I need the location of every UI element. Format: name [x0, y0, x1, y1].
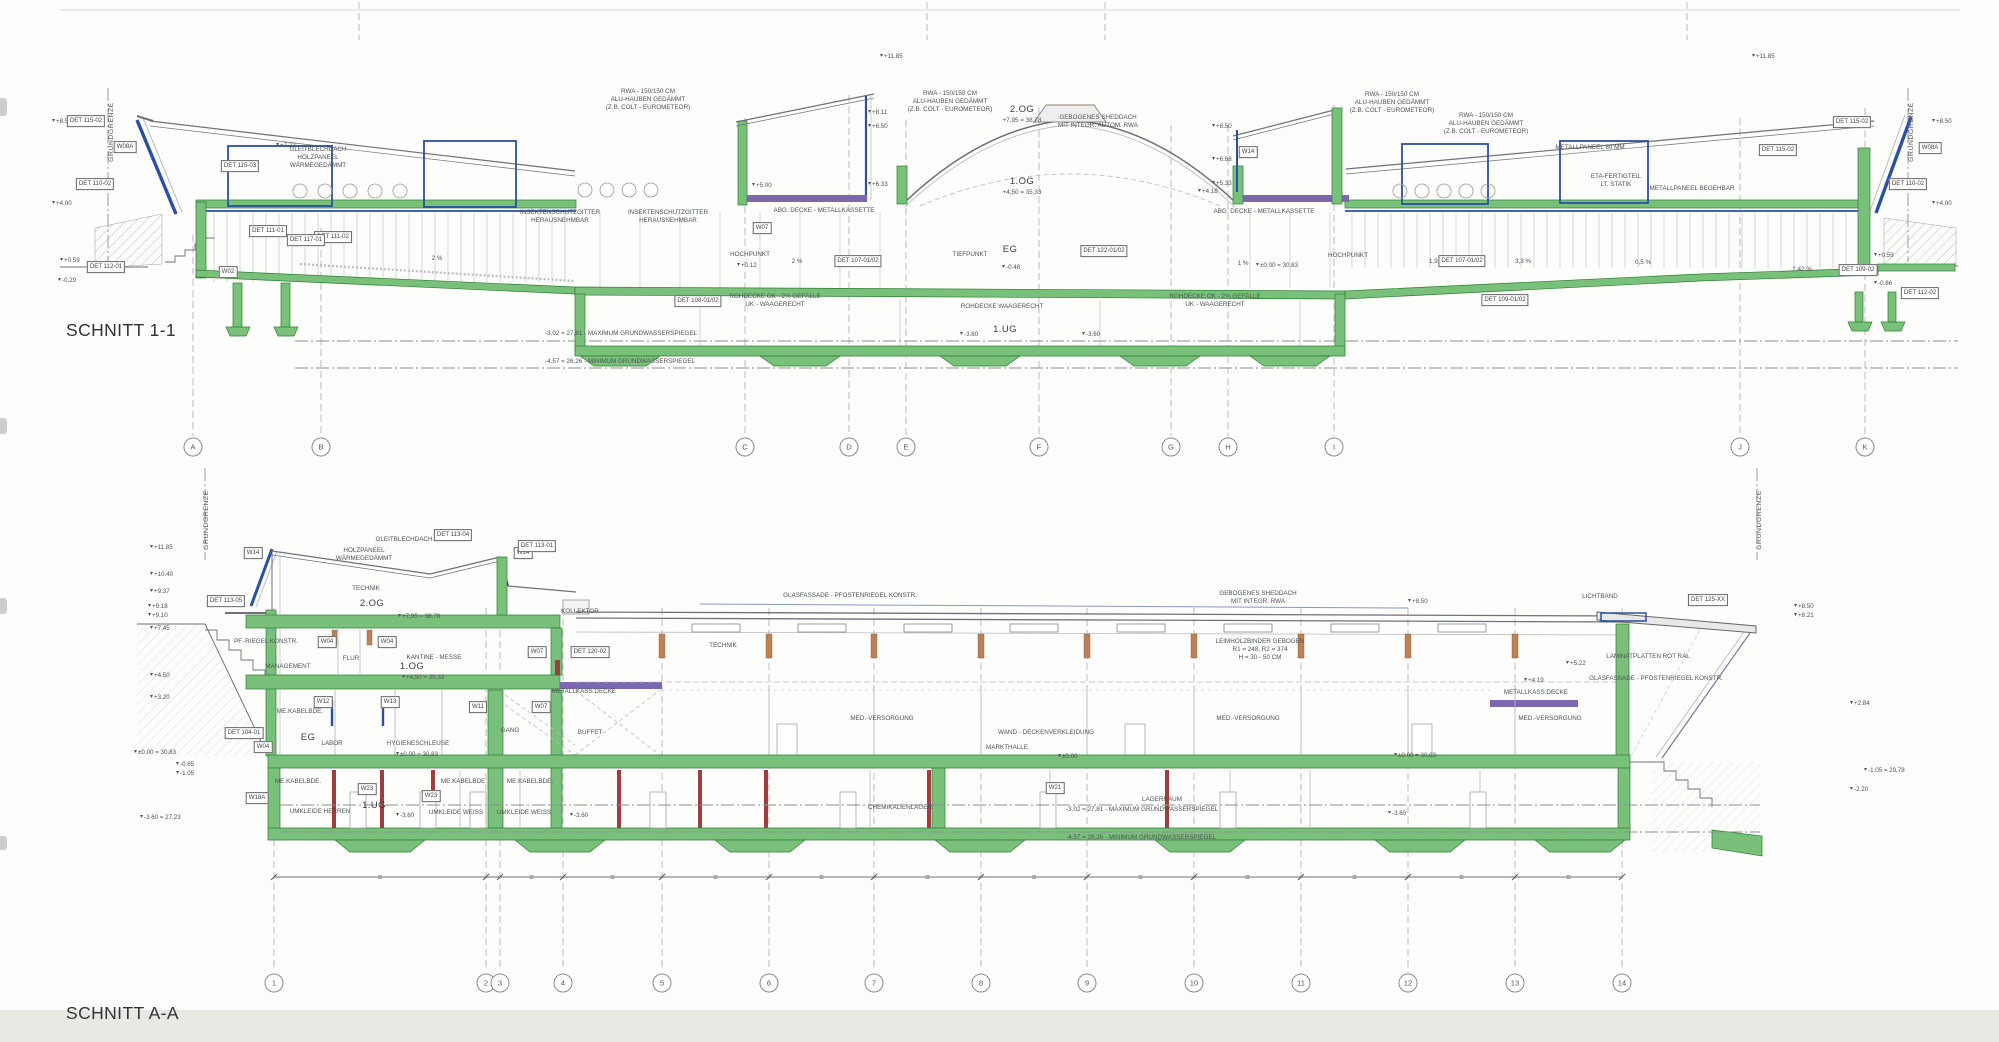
detail-ref-box: W04 [318, 636, 337, 648]
detail-ref-box: DET 117-01 [287, 234, 325, 246]
elevation-label: +5.33 [1212, 180, 1232, 188]
detail-ref-box: DET 104-01 [225, 727, 264, 739]
detail-ref-box: W23 [422, 790, 441, 802]
detail-ref-box: W12 [314, 696, 333, 708]
annotation-label: MED.-VERSORGUNG [850, 715, 913, 723]
annotation-label: GLEITBLECHDACH HOLZPANEEL WÄRMEGEDÄMMT [289, 146, 346, 170]
elevation-label: -3.60 [1082, 331, 1100, 339]
detail-ref-box: W04 [254, 741, 273, 753]
detail-ref-box: DET 113-04 [434, 529, 472, 541]
elevation-label: ±0.00 = 30,83 [396, 751, 438, 759]
sheet-edge-strip [0, 1010, 1999, 1042]
elevation-label: +8.11 [868, 109, 887, 117]
elevation-label: -3.60 [960, 331, 978, 339]
elevation-label: -0.86 [1874, 280, 1892, 288]
elevation-label: +8.21 [1794, 612, 1814, 620]
annotation-label: RWA - 150/150 CM ALU-HAUBEN GEDÄMMT (Z.B… [1444, 112, 1528, 136]
annotation-label: MED.-VERSORGUNG [1216, 715, 1279, 723]
annotation-label: LAGERRAUM [1142, 796, 1182, 804]
annotation-label: CHEMIKALIENLAGER [868, 804, 932, 812]
elevation-label: -3.60 = 27,23 [140, 814, 181, 822]
detail-ref-box: DET 110-02 [1889, 178, 1927, 190]
section-title-1-1: SCHNITT 1-1 [66, 320, 176, 341]
annotation-label: ME.KABELBDE. [507, 778, 553, 786]
annotation-label: LAMINATPLATTEN ROT RAL [1606, 653, 1690, 661]
scan-smudge [0, 836, 7, 850]
elevation-label: +0.59 [1874, 252, 1894, 260]
annotation-label: LABOR [321, 740, 342, 748]
elevation-label: +2.84 [1850, 700, 1870, 708]
grid-bubble-D: D [840, 438, 859, 457]
annotation-label: ME.KABELBDE. [275, 778, 321, 786]
elevation-label: ±0.00 = 30,83 [1256, 262, 1298, 270]
storey-label: EG [301, 732, 316, 744]
annotation-label: -3.02 = 27,81 - MAXIMUM GRUNDWASSERSPIEG… [1066, 806, 1218, 814]
elevation-label: ±0.00 = 30,83 [134, 749, 176, 757]
annotation-label: UMKLEIDE WEISS [497, 809, 551, 817]
elevation-label: +8.50 [1932, 118, 1952, 126]
drawing-sheet: SCHNITT 1-1 SCHNITT A-A GRUNDGRENZEGRUND… [0, 0, 1999, 1042]
elevation-label: +4.19 [1524, 677, 1544, 685]
annotation-label: -4.57 = 26,26 - MINIMUM GRUNDWASSERSPIEG… [1066, 834, 1216, 842]
annotation-label: INSEKTENSCHUTZGITTER HERAUSNEHMBAR [520, 209, 600, 225]
detail-ref-box: DET 115-03 [221, 160, 259, 172]
annotation-label: ME.KABELBDE. [277, 708, 323, 716]
grid-bubble-J: J [1731, 438, 1750, 457]
detail-ref-box: DET 112-01 [87, 261, 125, 273]
detail-ref-box: DET 109-01/02 [1481, 294, 1528, 306]
storey-label: 1.OG [400, 661, 424, 673]
grid-bubble-14: 14 [1613, 974, 1632, 993]
grid-bubble-I: I [1325, 438, 1344, 457]
annotation-label: ABG. DECKE - METALLKASSETTE [1213, 208, 1314, 216]
elevation-label: +6.50 [868, 123, 888, 131]
boundary-label: GRUNDGRENZE [108, 102, 116, 162]
section-title-a-a: SCHNITT A-A [66, 1003, 179, 1024]
annotation-label: GLASFASSADE - PFOSTENRIEGEL KONSTR. [783, 592, 917, 600]
grid-bubble-1: 1 [265, 974, 284, 993]
detail-ref-box: W18A [246, 792, 269, 804]
annotation-label: METALLPANEEL BEGEHBAR [1650, 185, 1735, 193]
grid-bubble-4: 4 [554, 974, 573, 993]
elevation-label: +4.00 [1932, 200, 1952, 208]
annotation-label: UMKLEIDE HERREN [290, 808, 351, 816]
detail-ref-box: DET 109-02 [1839, 264, 1878, 276]
elevation-label: +4.00 [52, 200, 72, 208]
storey-label: 1.UG [362, 800, 386, 812]
elevation-label: -2.20 [1850, 786, 1868, 794]
annotation-label: 2,42 % [1792, 266, 1812, 274]
grid-bubble-8: 8 [972, 974, 991, 993]
elevation-label: ±0.00 [1058, 753, 1077, 761]
scan-smudge [0, 98, 7, 116]
annotation-label: TECHNIK [352, 585, 380, 593]
stair-dashes [505, 690, 660, 755]
grid-bubble-3: 3 [491, 974, 510, 993]
scan-smudge [0, 598, 7, 614]
storey-label: 2.OG [360, 598, 384, 610]
detail-ref-box: DET 115-02 [1833, 116, 1871, 128]
boundary-label: GRUNDGRENZE [203, 490, 211, 550]
annotation-label: GEBOGENES SHEDDACH MIT INTEGR. RWA [1219, 590, 1296, 606]
annotation-label: GANG [501, 727, 520, 735]
elevation-label: +9.10 [148, 612, 168, 620]
storey-label: 1.OG [1010, 176, 1034, 188]
detail-ref-box: W04 [378, 636, 397, 648]
annotation-label: BUFFET [578, 729, 603, 737]
annotation-label: HYGIENESCHLEUSE [387, 740, 449, 748]
stair-left [165, 238, 215, 262]
grid-bubble-11: 11 [1292, 974, 1311, 993]
elevation-label: +8.50 [1408, 598, 1428, 606]
grid-bubble-5: 5 [653, 974, 672, 993]
detail-ref-box: DET 115-02 [67, 115, 105, 127]
annotation-label: WAND - DECKENVERKLEIDUNG [998, 729, 1094, 737]
grid-bubble-12: 12 [1399, 974, 1418, 993]
annotation-label: 2 % [432, 255, 443, 263]
elevation-label: -0.48 [1002, 264, 1020, 272]
annotation-label: RWA - 150/150 CM ALU-HAUBEN GEDÄMMT (Z.B… [908, 90, 992, 114]
grid-bubble-C: C [736, 438, 755, 457]
annotation-label: UMKLEIDE WEISS [429, 809, 483, 817]
annotation-label: ROHDECKE WAAGERECHT [961, 303, 1043, 311]
elevation-label: +4.50 [150, 672, 170, 680]
elevation-label: +0.59 [60, 257, 80, 265]
annotation-label: GLASFASSADE - PFOSTENRIEGEL KONSTR. [1589, 675, 1723, 683]
annotation-label: HOCHPUNKT [730, 251, 770, 259]
detail-ref-box: W11 [469, 701, 487, 713]
grid-bubble-H: H [1219, 438, 1238, 457]
detail-ref-box: DET 113-05 [207, 595, 245, 607]
storey-label: EG [1003, 244, 1018, 256]
elevation-label: -3.60 [1388, 810, 1406, 818]
storey-label: 1.UG [993, 324, 1017, 336]
detail-ref-box: W02 [219, 266, 238, 278]
detail-ref-box: DET 125-XX [1688, 594, 1728, 606]
elevation-label: +11.85 [1752, 53, 1775, 61]
annotation-label: 2 % [792, 258, 803, 266]
scan-smudge [0, 418, 7, 434]
annotation-label: LEIMHOLZBINDER GEBOGEN R1 = 248, R2 = 37… [1216, 638, 1305, 662]
annotation-label: GEBOGENES SHEDDACH MIT INTEGR. AUTOM. RW… [1058, 114, 1138, 130]
annotation-label: TECHNIK [709, 642, 737, 650]
annotation-label: MARKTHALLE [986, 744, 1028, 752]
elevation-label: +6.68 [1212, 156, 1232, 164]
elevation-label: +9.37 [150, 588, 170, 596]
detail-ref-box: DET 110-02 [76, 178, 114, 190]
elevation-label: +7.45 [150, 625, 170, 633]
annotation-label: 3,3 % [1515, 258, 1531, 266]
elevation-label: +8.50 [1212, 123, 1232, 131]
detail-ref-box: DET 112-02 [1901, 287, 1939, 299]
elevation-label: -1.05 [176, 770, 194, 778]
detail-ref-box: DET 111-01 [249, 225, 287, 237]
annotation-label: KOLLEKTOR [561, 608, 599, 616]
annotation-label: ABG. DECKE - METALLKASSETTE [773, 207, 874, 215]
detail-ref-box: DET 107-01/02 [834, 255, 881, 267]
grid-bubble-10: 10 [1185, 974, 1204, 993]
elevation-label: +4,50 = 35,33 [402, 674, 444, 682]
detail-ref-box: W21 [1046, 782, 1065, 794]
elevation-label: -0.29 [58, 277, 76, 285]
annotation-label: MANAGEMENT [265, 663, 310, 671]
grid-bubble-A: A [184, 438, 203, 457]
grid-bubble-G: G [1162, 438, 1181, 457]
detail-ref-box: DET 115-02 [1759, 144, 1797, 156]
grid-bubble-E: E [897, 438, 916, 457]
annotation-label: +7,95 = 38,78 [1003, 117, 1042, 125]
detail-ref-box: DET 113-01 [518, 540, 556, 552]
annotation-label: 0,5 % [1635, 259, 1651, 267]
grid-bubble-6: 6 [760, 974, 779, 993]
detail-ref-box: W08A [114, 141, 137, 153]
elevation-label: +11.85 [880, 53, 903, 61]
annotation-label: TIEFPUNKT [953, 251, 988, 259]
grid-bubble-B: B [312, 438, 331, 457]
terrain-hatch-left [95, 214, 162, 268]
sheet-fold-marks [359, 2, 1687, 40]
annotation-label: FLUR [343, 655, 359, 663]
storey-label: 2.OG [1010, 104, 1034, 116]
detail-ref-box: W14 [244, 547, 263, 559]
annotation-label: METALLKASS.DECKE [552, 688, 616, 696]
elevation-label: +7,95 = 38,78 [398, 613, 440, 621]
annotation-label: +4,50 = 35,33 [1003, 189, 1042, 197]
detail-ref-box: W13 [381, 696, 400, 708]
detail-ref-box: W07 [528, 646, 547, 658]
annotation-label: PF.-RIEGEL KONSTR. [234, 638, 298, 646]
elevation-label: +4.18 [1198, 188, 1218, 196]
annotation-label: METALLPANEEL 80 MM [1555, 144, 1624, 152]
annotation-label: ME.KABELBDE. [441, 778, 487, 786]
annotation-label: LICHTBAND [1582, 593, 1618, 601]
annotation-label: -4.57 = 26,26 - MINIMUM GRUNDWASSERSPIEG… [545, 358, 695, 366]
detail-ref-box: DET 108-01/02 [674, 295, 721, 307]
elevation-label: +9.18 [148, 603, 168, 611]
elevation-label: +10.40 [150, 571, 173, 579]
detail-ref-box: DET 107-01/02 [1438, 255, 1485, 267]
grid-bubble-9: 9 [1078, 974, 1097, 993]
boundary-label: GRUNDGRENZE [1908, 102, 1916, 162]
annotation-label: INSEKTENSCHUTZGITTER HERAUSNEHMBAR [628, 209, 708, 225]
elevation-label: -1.05 = 29,78 [1864, 767, 1905, 775]
grid-bubble-K: K [1856, 438, 1875, 457]
elevation-label: +3.20 [150, 694, 170, 702]
detail-ref-box: W08A [1919, 142, 1942, 154]
elevation-label: -3.60 [570, 812, 588, 820]
terrain-hatch-right [1884, 218, 1956, 266]
annotation-label: METALLKASS.DECKE [1504, 689, 1568, 697]
grid-bubble-13: 13 [1506, 974, 1525, 993]
elevation-label: +6.33 [868, 181, 888, 189]
elevation-label: +0.12 [737, 262, 757, 270]
elevation-label: +8.50 [1794, 603, 1814, 611]
grid-bubble-F: F [1030, 438, 1049, 457]
boundary-label: GRUNDGRENZE [1756, 490, 1764, 550]
annotation-label: -3.02 = 27,81 - MAXIMUM GRUNDWASSERSPIEG… [545, 330, 697, 338]
annotation-label: ROHDECKE OK - 2% GEFÄLLE UK - WAAGERECHT [729, 293, 820, 309]
detail-ref-box: DET 120-02 [571, 646, 610, 658]
detail-ref-box: W14 [1239, 146, 1258, 158]
annotation-label: HOLZPANEEL WÄRMEGEDÄMMT [336, 547, 392, 563]
annotation-label: RWA - 150/150 CM ALU-HAUBEN GEDÄMMT (Z.B… [1350, 91, 1434, 115]
annotation-label: MED.-VERSORGUNG [1518, 715, 1581, 723]
elevation-label: ±0.00 = 30,83 [1394, 752, 1436, 760]
annotation-label: HOCHPUNKT [1328, 252, 1368, 260]
schnitt-1-1-linework [60, 88, 1958, 436]
annotation-label: ETA-FERTIGTEIL LT. STATIK [1591, 173, 1641, 189]
detail-ref-box: W23 [358, 783, 377, 795]
elevation-label: +5.22 [1566, 660, 1586, 668]
detail-ref-box: W07 [753, 222, 772, 234]
annotation-label: RWA - 150/150 CM ALU-HAUBEN GEDÄMMT (Z.B… [606, 88, 690, 112]
elevation-label: +5.00 [752, 182, 772, 190]
annotation-label: 1 % [1238, 260, 1249, 268]
elevation-label: +11.85 [150, 544, 173, 552]
detail-ref-box: DET 122-01/02 [1080, 245, 1127, 257]
annotation-label: ROHDECKE OK - 2% GEFÄLLE UK - WAAGERECHT [1169, 293, 1260, 309]
grid-bubble-7: 7 [865, 974, 884, 993]
elevation-label: -3.60 [396, 812, 414, 820]
elevation-label: -0.65 [176, 761, 194, 769]
detail-ref-box: W07 [532, 701, 551, 713]
annotation-label: GLEITBLECHDACH [375, 536, 432, 544]
